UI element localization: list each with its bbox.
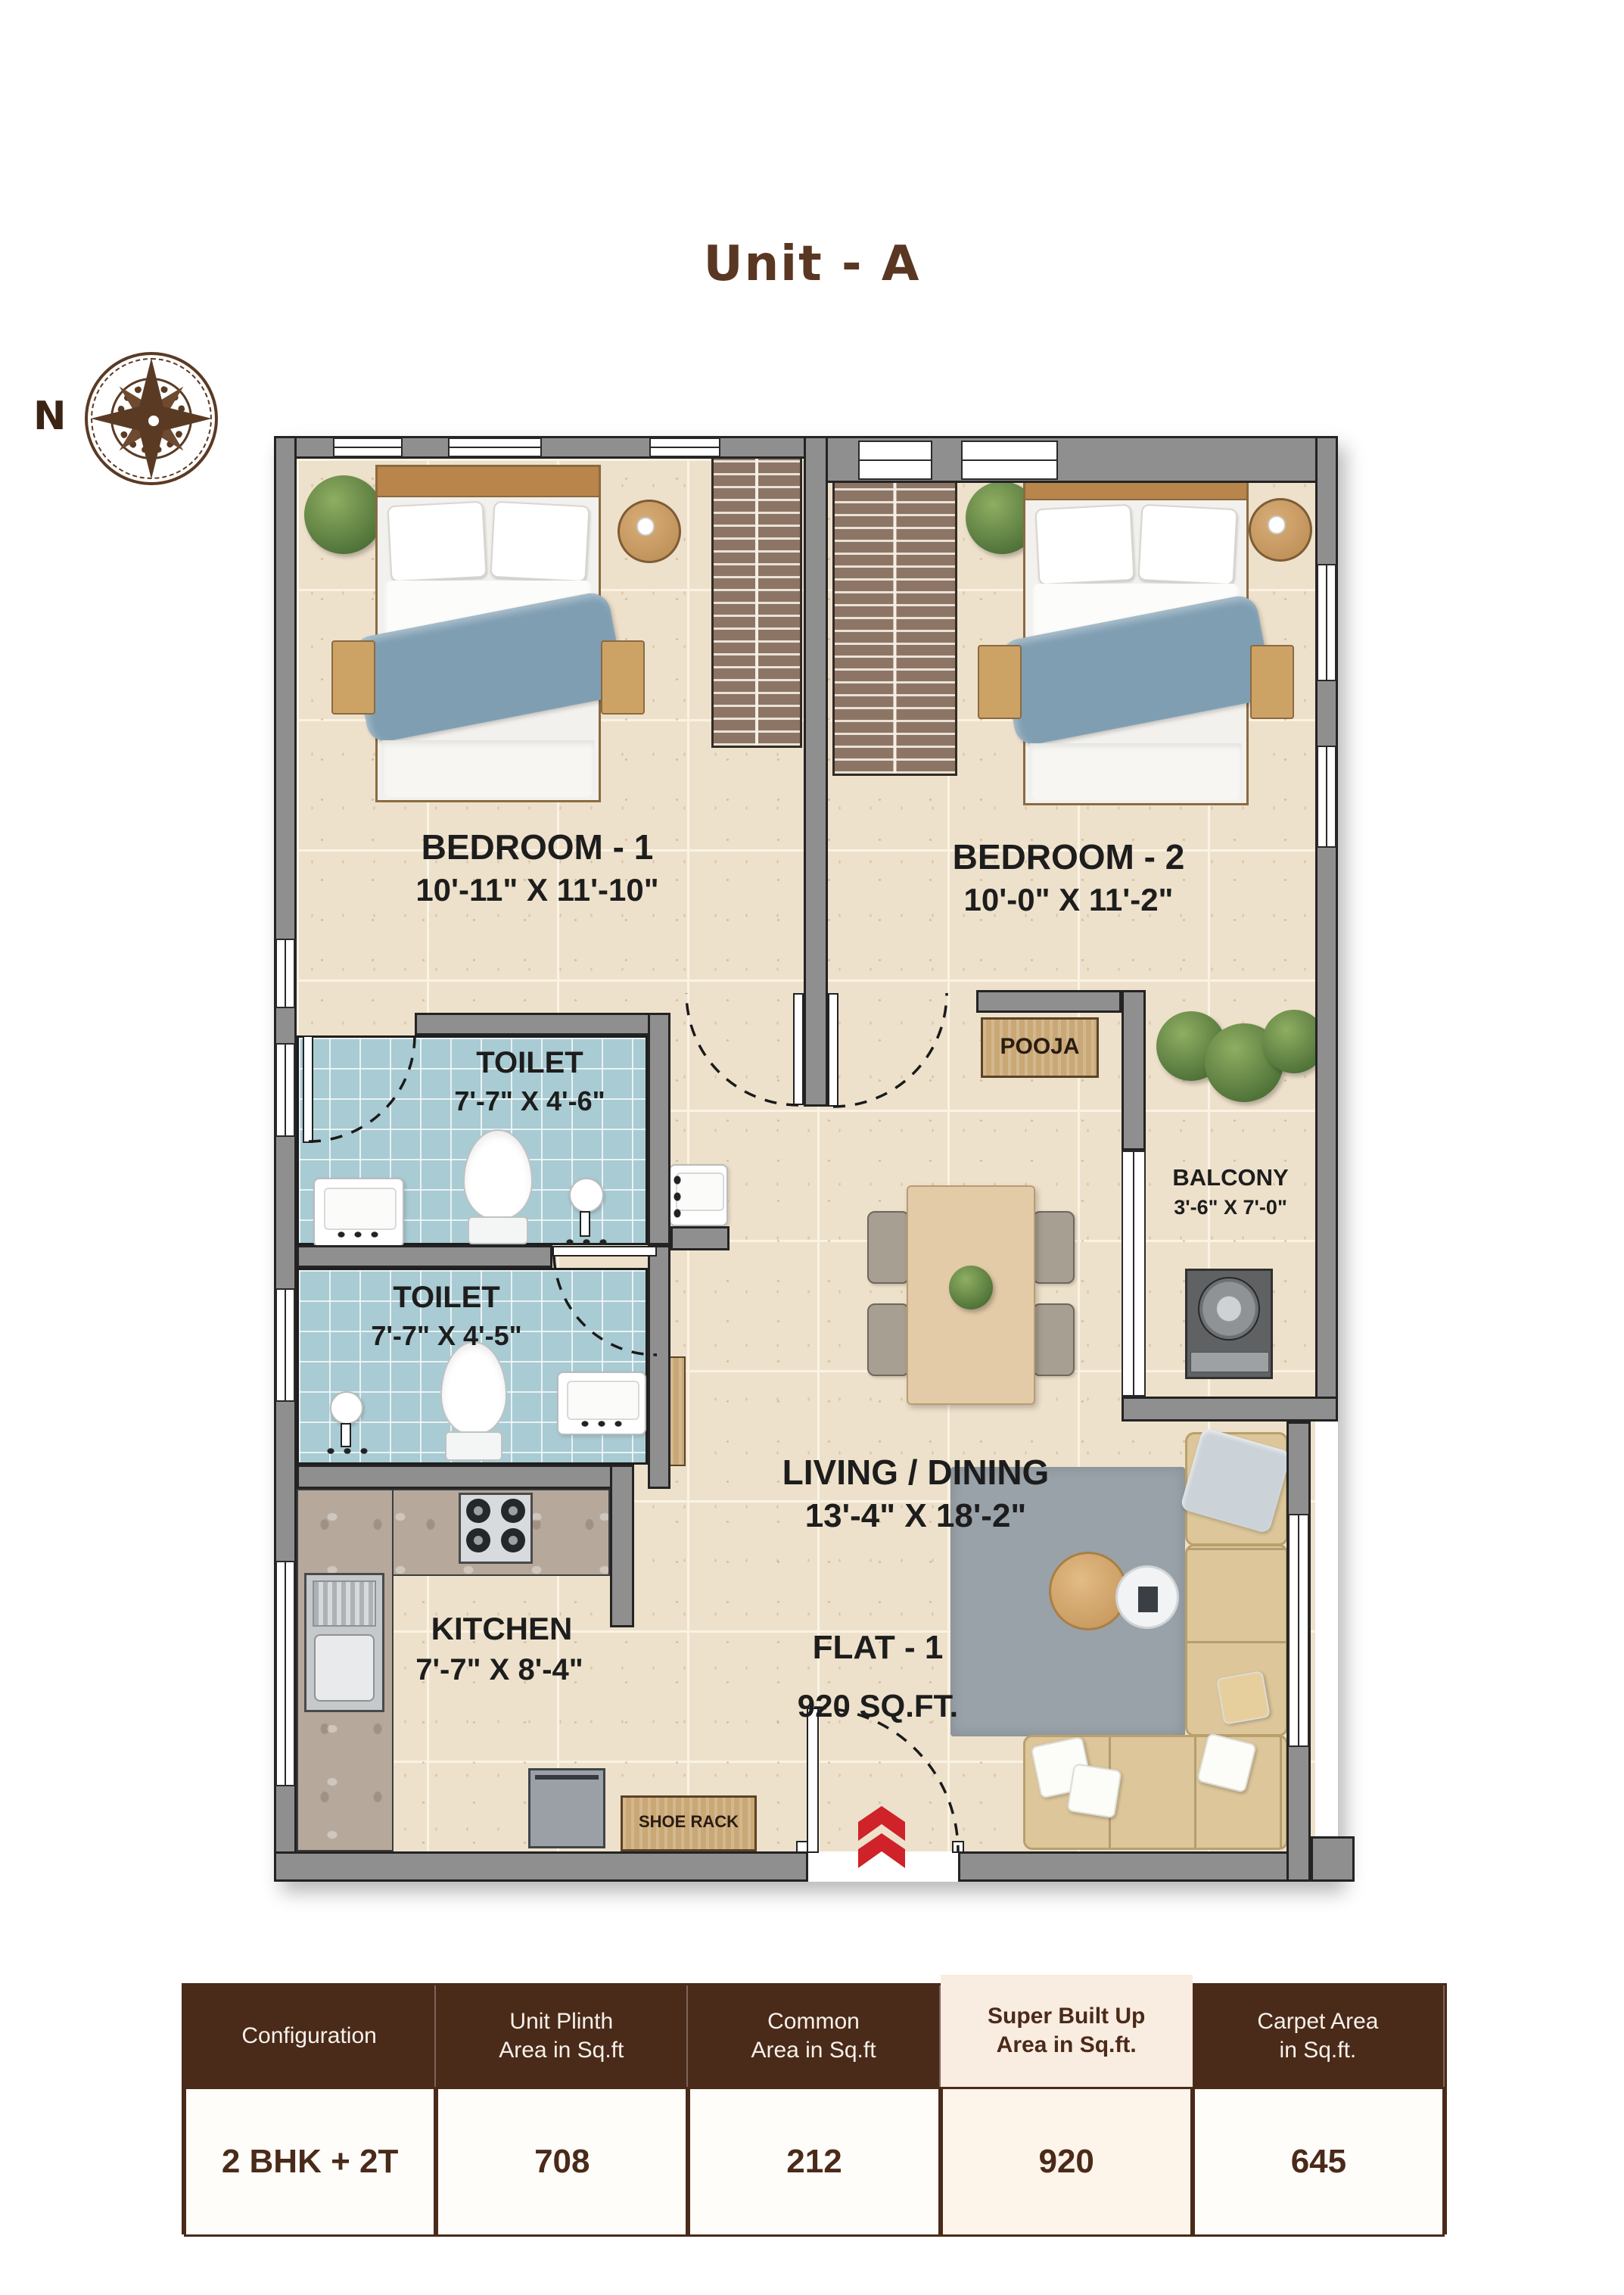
summary-table: Configuration Unit Plinth Area in Sq.ft … (182, 1983, 1447, 2234)
door-arc-bedroom2 (833, 993, 947, 1107)
table-header-configuration: Configuration (184, 1985, 436, 2087)
bedroom1-name: BEDROOM - 1 (422, 827, 654, 867)
flat-area: 920 SQ.FT. (798, 1688, 958, 1724)
door-arc-toilet2 (554, 1256, 657, 1355)
chevron (858, 1833, 905, 1868)
flat-name: FLAT - 1 (813, 1629, 944, 1667)
table-cell-super-built-up: 920 (941, 2087, 1193, 2237)
table-header-carpet: Carpet Area in Sq.ft. (1193, 1985, 1445, 2087)
kitchen-dims: 7'-7" X 8'-4" (415, 1653, 583, 1687)
living-dims: 13'-4" X 18'-2" (805, 1497, 1027, 1535)
table-header-super-built-up: Super Built Up Area in Sq.ft. (941, 1975, 1193, 2087)
door-arc-bedroom1 (686, 993, 798, 1105)
toilet2-name: TOILET (393, 1281, 499, 1315)
living-name: LIVING / DINING (782, 1452, 1050, 1493)
toilet1-dims: 7'-7" X 4'-6" (454, 1085, 605, 1117)
pooja-label: POOJA (1000, 1034, 1079, 1060)
bedroom2-dims: 10'-0" X 11'-2" (964, 882, 1174, 918)
table-cell-configuration: 2 BHK + 2T (184, 2087, 436, 2237)
bedroom1-dims: 10'-11" X 11'-10" (415, 872, 658, 908)
door-swing-arcs (0, 0, 1624, 2295)
kitchen-name: KITCHEN (431, 1611, 573, 1647)
toilet1-name: TOILET (476, 1046, 583, 1080)
table-cell-carpet: 645 (1193, 2087, 1445, 2237)
table-header-unit-plinth: Unit Plinth Area in Sq.ft (436, 1985, 688, 2087)
shoe-rack-label: SHOE RACK (639, 1812, 739, 1832)
door-arc-toilet1 (309, 1035, 415, 1141)
floor-plan-page: Unit - A N (0, 0, 1624, 2295)
table-cell-unit-plinth: 708 (436, 2087, 688, 2237)
table-header-common: Common Area in Sq.ft (688, 1985, 940, 2087)
toilet2-dims: 7'-7" X 4'-5" (371, 1320, 521, 1352)
table-cell-common: 212 (688, 2087, 940, 2237)
bedroom2-name: BEDROOM - 2 (953, 836, 1185, 877)
entrance-arrow-icon (858, 1806, 905, 1870)
balcony-dims: 3'-6" X 7'-0" (1174, 1196, 1287, 1219)
balcony-name: BALCONY (1172, 1164, 1288, 1191)
